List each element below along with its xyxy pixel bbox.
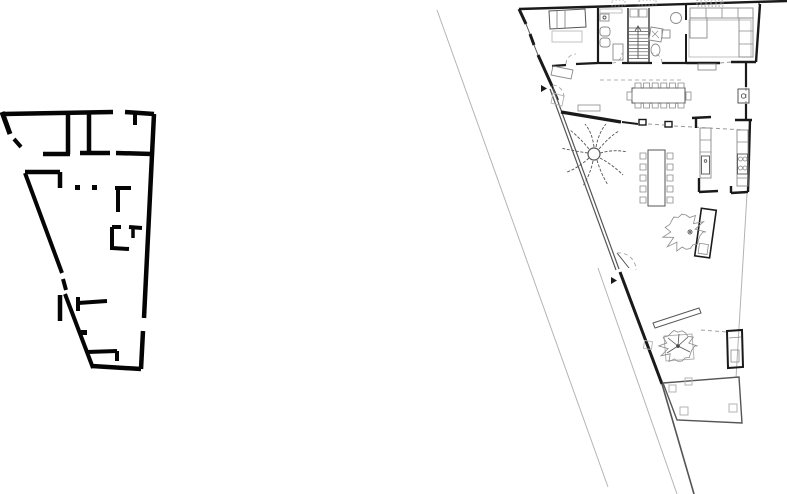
closet-dash [701,330,727,332]
sliding-glass-dash [648,124,664,125]
detailed-floor-plan [437,0,787,494]
second-table-chairs [640,153,673,203]
wc-sink [662,30,670,38]
long-table-chairs-item [661,103,667,108]
long-table-chairs-item [644,103,650,108]
kitchen-wall [731,192,748,193]
long-table-chairs-item [652,103,658,108]
shower [649,27,663,42]
shaft-fixture [741,94,745,98]
low-cabinet [578,105,600,111]
bedroom-rug [552,31,582,42]
stair-landing-cabinet [630,9,638,17]
west-facade [538,55,552,86]
second-table-chairs-item [640,153,646,159]
long-table-chairs-item [669,103,675,108]
schematic-room-wall [129,227,142,228]
door-swing-arc [566,54,576,64]
bed [549,9,586,29]
schematic-right-wall [144,114,154,318]
long-table-chairs-item [635,103,641,108]
closet-shelf-line [729,337,741,338]
second-table-chairs-item [640,164,646,170]
schematic-post [92,185,97,190]
kitchen-sink [702,156,710,174]
planter-box [695,208,717,258]
glazing-pier [622,122,638,124]
courtyard-marker-triangle [611,277,617,284]
garden-wall [662,384,694,494]
bidet [600,38,610,47]
second-table-chairs-item [640,175,646,181]
sofa-chaise [690,18,707,38]
door-swing-arc [612,53,622,63]
shrub-stem-dot [689,231,691,233]
tree-branches [667,334,690,353]
schematic-west-diagonal [25,173,62,273]
long-table-chairs-item [652,83,658,88]
wc-toilet [651,44,660,56]
architectural-drawing-sheet [0,0,787,494]
living-door-dash [720,62,731,63]
stair-landing-cabinet [639,9,647,17]
burner [743,157,747,161]
terrace-room [663,377,742,423]
schematic-lower-partition [87,351,117,352]
long-table-chairs-item [635,83,641,88]
bedroom-south-wall [576,63,598,64]
second-table-chairs-item [640,197,646,203]
hall-console [698,64,716,70]
garden-bench [653,308,701,328]
glazing-post [639,120,646,126]
kitchen-wall [699,191,718,192]
door-swing-arc [617,253,636,270]
schematic-room-wall [112,248,129,249]
glazing-post [665,122,672,128]
schematic-lower-partition [78,301,107,303]
west-facade [519,9,526,24]
second-dining-table [648,150,665,206]
counter-divisions [700,140,711,152]
bath-cabinet [613,44,623,60]
schematic-post [81,330,87,335]
schematic-top-wall [3,112,113,114]
second-table-chairs-item [667,197,673,203]
courtyard-north-wall [561,112,621,122]
door-swing-arc [652,53,662,63]
east-wall-living [756,4,760,62]
palm-fronds [561,124,627,186]
long-dining-table [632,88,685,103]
living-rug [689,20,751,57]
shaft-box [738,89,749,103]
schematic-post [75,185,80,190]
second-table-chairs-item [640,186,646,192]
sink-drain [603,16,606,19]
schematic-key-plan [2,112,154,369]
entry-cabinet [551,66,573,79]
street-curb-line [598,268,677,494]
facade-window [534,45,538,55]
street-boundary-line [437,10,608,487]
toilet [600,27,610,36]
long-table-chairs-item [644,83,650,88]
terrace-column [669,385,676,392]
long-table-chairs-item [678,83,684,88]
sofa-back [690,8,753,18]
long-table-chairs-item [678,103,684,108]
schematic-door-jamb [14,139,21,147]
west-facade [530,34,534,45]
planter-inner [698,243,708,254]
schematic-diagonal-dash [63,279,66,290]
dining-chair-end [627,92,632,100]
stair-up-arrow [635,26,641,59]
entry-marker-triangle [541,85,547,92]
sofa-cushion-lines [706,8,738,18]
second-table-chairs-item [667,164,673,170]
burner [739,166,743,170]
sink-tap [704,160,707,163]
second-table-chairs-item [667,186,673,192]
round-basin [671,13,682,24]
long-table-chairs-item [661,83,667,88]
terrace-column [729,404,737,412]
terrace-column [680,407,688,415]
schematic-right-wall-lower [141,331,143,369]
burner [739,157,743,161]
planter-box-group [695,208,717,258]
floor-plans-canvas [0,0,787,494]
long-table-chairs [635,83,684,108]
dining-chair-end [686,92,691,100]
long-table-chairs-item [669,83,675,88]
bath-sink [600,14,609,21]
bath-shelf [600,9,622,13]
schematic-bottom-wall [92,366,141,369]
second-table-chairs-item [667,153,673,159]
stair-treads [629,28,648,62]
facade-window [526,24,530,34]
shower-drain-lines [652,31,659,38]
burner [743,166,747,170]
schematic-partition [116,153,152,154]
schematic-top-wall-right [125,112,154,114]
second-table-chairs-item [667,175,673,181]
palm-trunk [588,148,600,160]
